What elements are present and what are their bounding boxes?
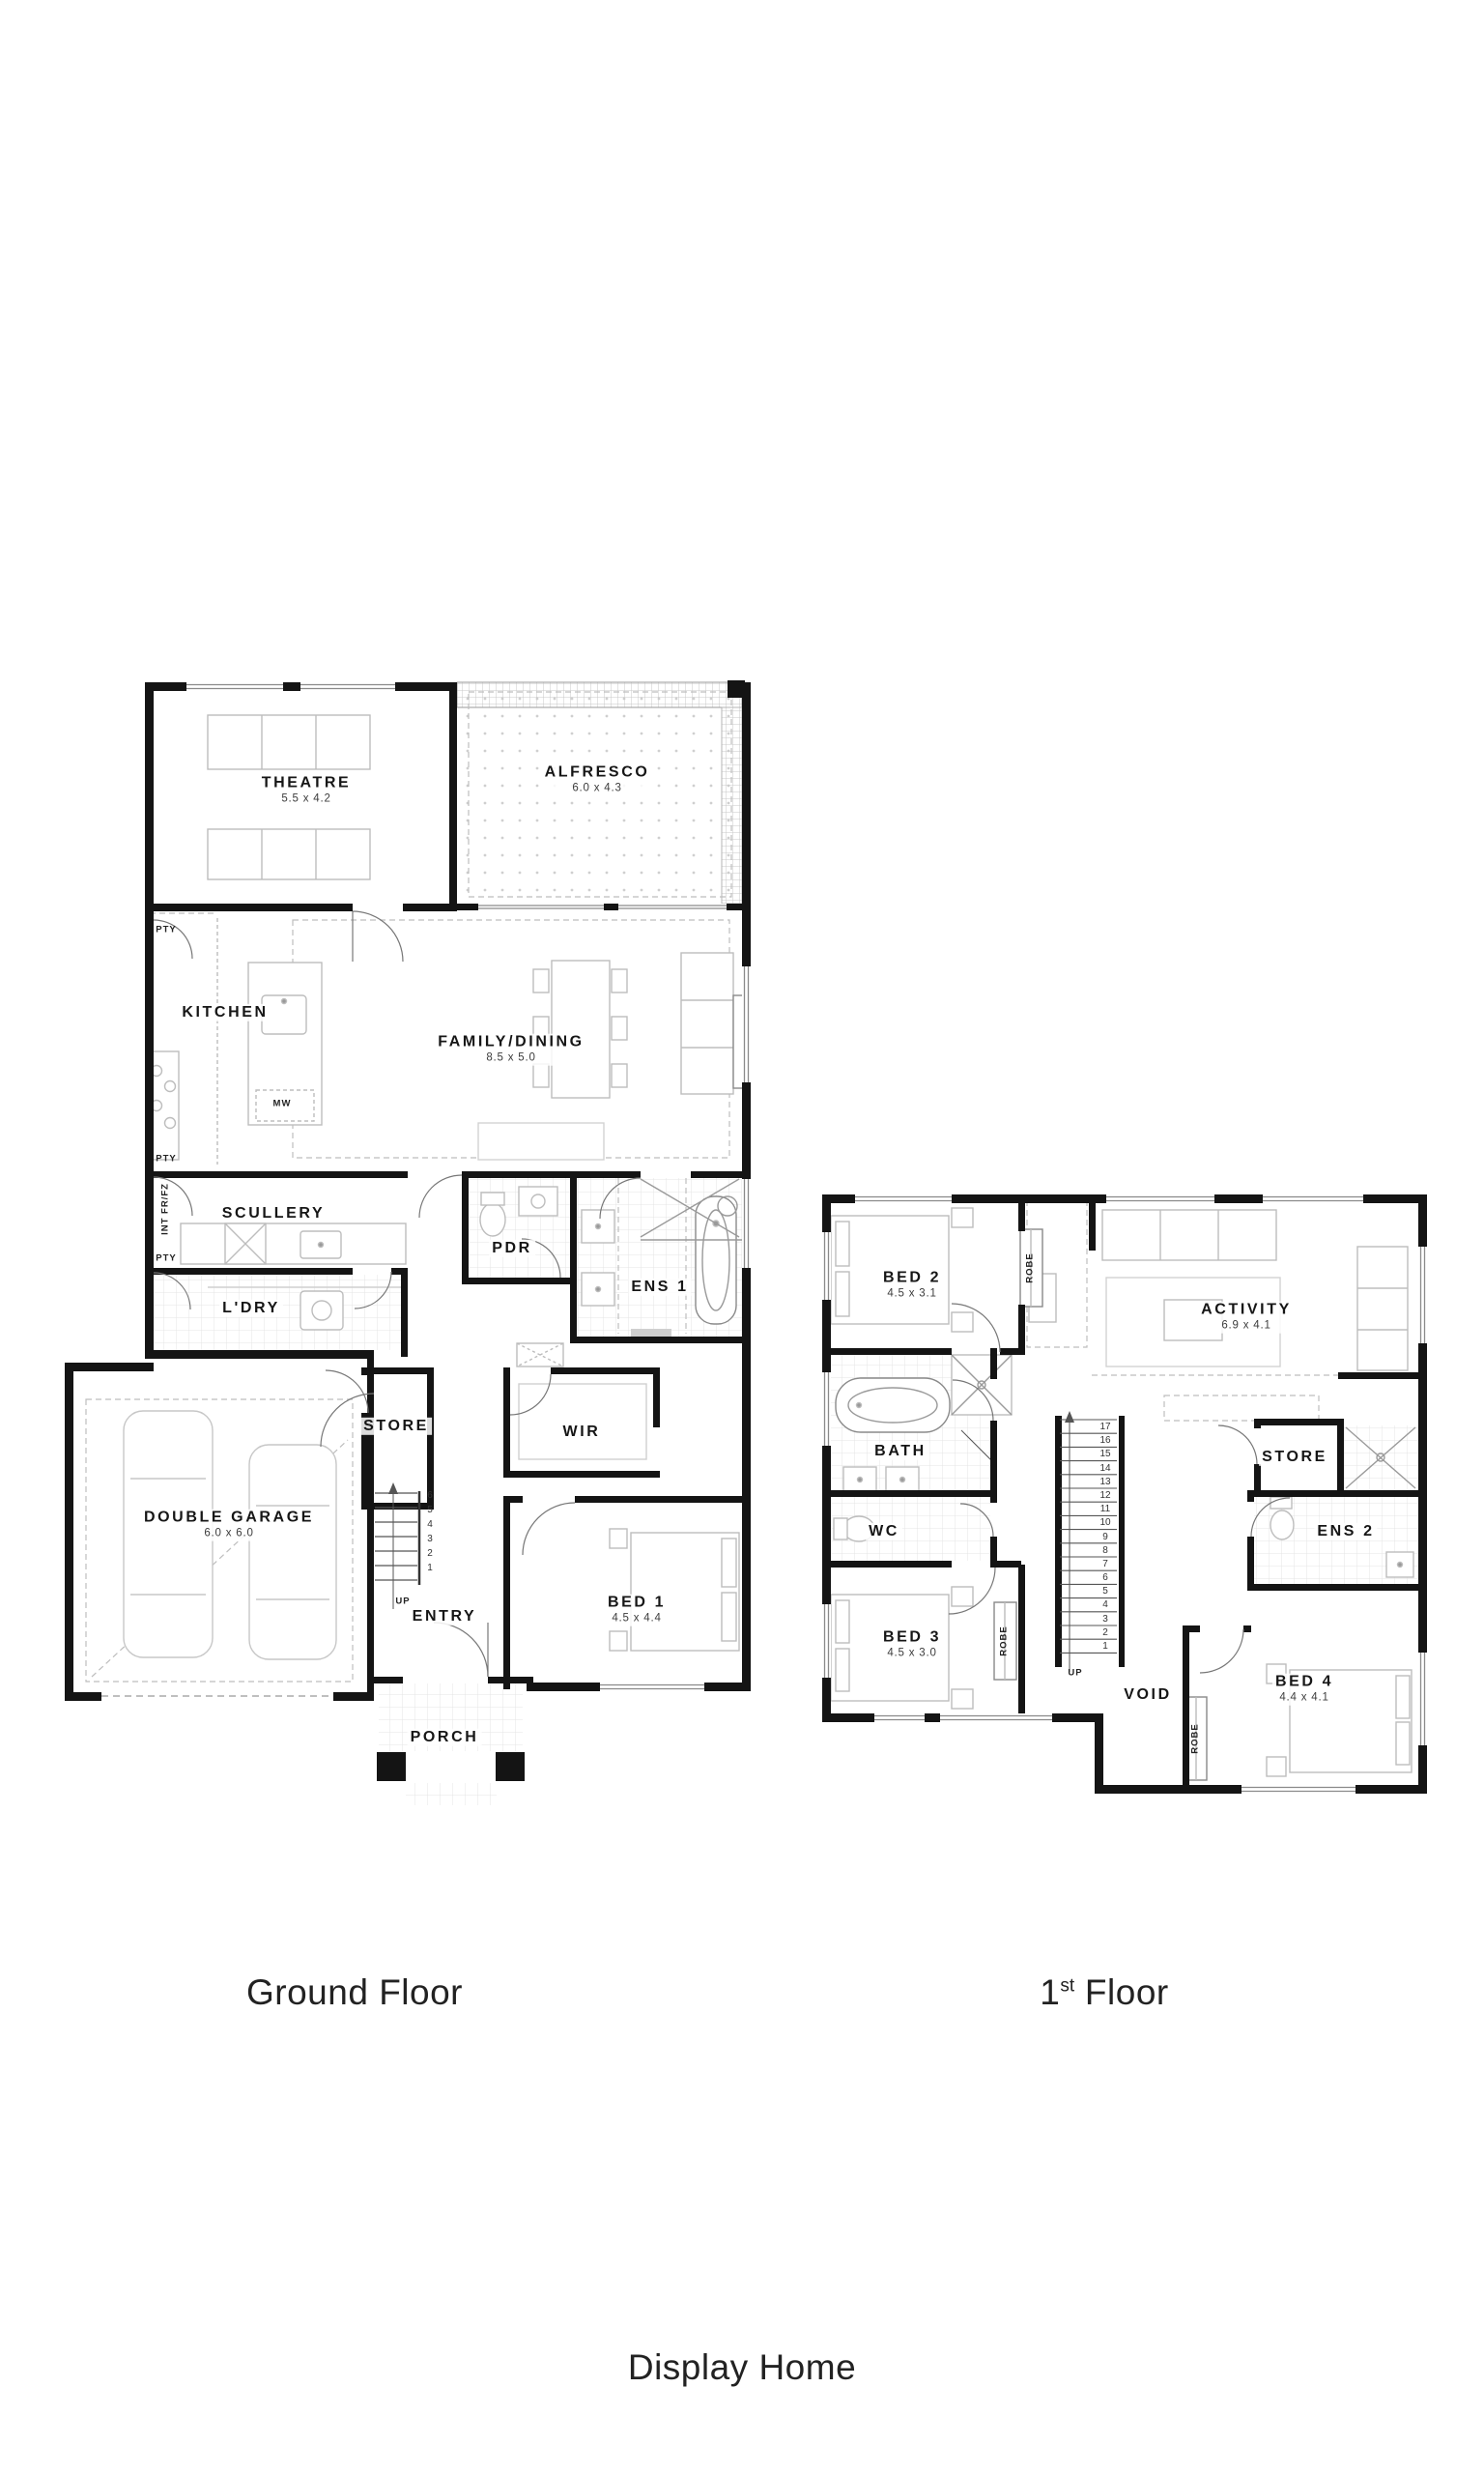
room-label-bed4: BED 4 4.4 x 4.1 xyxy=(1272,1674,1336,1706)
room-label-bath: BATH xyxy=(871,1443,929,1460)
label-up-first: UP xyxy=(1068,1669,1082,1680)
ground-floor-plan: THEATRE 5.5 x 4.2 ALFRESCO 6.0 x 4.3 KIT… xyxy=(63,676,783,1807)
stair-number: 6 xyxy=(421,1488,439,1503)
stair-number: 1 xyxy=(421,1561,439,1575)
first-stair-numbers: 1716151413121110987654321 xyxy=(1097,1421,1114,1654)
stair-number: 13 xyxy=(1097,1476,1114,1489)
label-microwave: MW xyxy=(273,1100,292,1110)
label-pty-3: PTY xyxy=(156,1254,176,1265)
room-label-ldry: L'DRY xyxy=(219,1300,283,1317)
room-dims: 6.0 x 6.0 xyxy=(204,1528,253,1540)
stair-number: 9 xyxy=(1097,1531,1114,1544)
label-robe-bed3: ROBE xyxy=(1000,1625,1011,1655)
room-name: ALFRESCO xyxy=(545,764,650,782)
room-label-ens2: ENS 2 xyxy=(1314,1523,1377,1540)
room-dims: 6.0 x 4.3 xyxy=(572,783,621,795)
room-label-kitchen: KITCHEN xyxy=(179,1004,271,1021)
room-label-family-dining: FAMILY/DINING 8.5 x 5.0 xyxy=(435,1034,586,1066)
room-dims: 5.5 x 4.2 xyxy=(281,793,330,806)
stair-number: 4 xyxy=(421,1517,439,1532)
room-name: DOUBLE GARAGE xyxy=(144,1510,314,1527)
room-label-entry: ENTRY xyxy=(410,1608,480,1625)
stair-number: 11 xyxy=(1097,1503,1114,1516)
label-robe-bed4: ROBE xyxy=(1191,1723,1202,1753)
label-pty-1: PTY xyxy=(156,926,176,936)
room-name: ACTIVITY xyxy=(1201,1302,1292,1319)
stair-number: 14 xyxy=(1097,1462,1114,1476)
room-label-bed3: BED 3 4.5 x 3.0 xyxy=(880,1629,944,1661)
stair-number: 8 xyxy=(1097,1544,1114,1558)
room-label-void: VOID xyxy=(1121,1686,1175,1704)
caption-ordinal: st xyxy=(1060,1976,1074,1997)
ground-stair-numbers: 654321 xyxy=(421,1488,439,1575)
room-label-theatre: THEATRE 5.5 x 4.2 xyxy=(259,775,355,807)
room-dims: 4.5 x 3.0 xyxy=(887,1648,936,1660)
caption-text: Display Home xyxy=(628,2347,856,2387)
room-label-scullery: SCULLERY xyxy=(219,1205,328,1223)
caption-number: 1 xyxy=(1040,1972,1060,2012)
room-label-porch: PORCH xyxy=(408,1729,482,1746)
room-label-bed2: BED 2 4.5 x 3.1 xyxy=(880,1270,944,1302)
caption-ground-floor: Ground Floor xyxy=(246,1972,463,2013)
room-name: VOID xyxy=(1124,1686,1172,1704)
room-name: WC xyxy=(869,1523,899,1540)
stair-number: 17 xyxy=(1097,1421,1114,1434)
stair-number: 4 xyxy=(1097,1598,1114,1612)
room-label-store: STORE xyxy=(360,1418,432,1435)
stair-number: 3 xyxy=(1097,1613,1114,1626)
room-dims: 4.4 x 4.1 xyxy=(1279,1692,1328,1705)
room-name: STORE xyxy=(363,1418,429,1435)
room-dims: 6.9 x 4.1 xyxy=(1221,1320,1270,1333)
room-label-pdr: PDR xyxy=(489,1240,535,1257)
room-name: KITCHEN xyxy=(182,1004,268,1021)
room-label-ens1: ENS 1 xyxy=(628,1279,691,1296)
caption-text: Floor xyxy=(1074,1972,1169,2012)
stair-number: 5 xyxy=(1097,1585,1114,1598)
room-label-alfresco: ALFRESCO 6.0 x 4.3 xyxy=(542,764,653,796)
room-dims: 4.5 x 4.4 xyxy=(612,1613,661,1625)
stair-number: 6 xyxy=(1097,1571,1114,1585)
room-name: ENTRY xyxy=(413,1608,477,1625)
label-int-fridge-freezer: INT FR/FZ xyxy=(161,1183,172,1235)
label-up-ground: UP xyxy=(395,1597,410,1608)
room-label-wc: WC xyxy=(866,1523,902,1540)
stair-number: 15 xyxy=(1097,1448,1114,1461)
room-label-wir: WIR xyxy=(560,1424,604,1441)
room-label-bed1: BED 1 4.5 x 4.4 xyxy=(605,1595,669,1626)
stair-number: 5 xyxy=(421,1503,439,1517)
label-pty-2: PTY xyxy=(156,1155,176,1165)
room-name: PORCH xyxy=(411,1729,479,1746)
room-label-double-garage: DOUBLE GARAGE 6.0 x 6.0 xyxy=(141,1510,317,1541)
room-dims: 8.5 x 5.0 xyxy=(486,1052,535,1065)
stair-number: 7 xyxy=(1097,1558,1114,1571)
room-name: ENS 2 xyxy=(1317,1523,1374,1540)
room-name: BED 1 xyxy=(608,1595,666,1612)
room-name: PDR xyxy=(492,1240,532,1257)
room-name: BED 2 xyxy=(883,1270,941,1287)
stair-number: 16 xyxy=(1097,1434,1114,1448)
room-name: STORE xyxy=(1262,1449,1327,1466)
room-name: SCULLERY xyxy=(222,1205,325,1223)
stair-number: 1 xyxy=(1097,1640,1114,1654)
room-name: BED 4 xyxy=(1275,1674,1333,1691)
stair-number: 12 xyxy=(1097,1489,1114,1503)
stair-number: 2 xyxy=(1097,1626,1114,1640)
room-name: BED 3 xyxy=(883,1629,941,1647)
stair-number: 2 xyxy=(421,1546,439,1561)
stair-number: 3 xyxy=(421,1532,439,1546)
caption-display-home: Display Home xyxy=(628,2347,856,2388)
caption-text: Ground Floor xyxy=(246,1972,463,2012)
ground-floor-linework xyxy=(63,676,783,1807)
room-name: FAMILY/DINING xyxy=(438,1034,584,1051)
room-name: BATH xyxy=(874,1443,927,1460)
room-name: L'DRY xyxy=(222,1300,280,1317)
room-dims: 4.5 x 3.1 xyxy=(887,1288,936,1301)
floorplan-sheet: THEATRE 5.5 x 4.2 ALFRESCO 6.0 x 4.3 KIT… xyxy=(0,0,1484,2474)
room-name: WIR xyxy=(563,1424,601,1441)
ground-stairs xyxy=(375,1482,419,1609)
room-name: THEATRE xyxy=(262,775,352,792)
label-robe-bed2: ROBE xyxy=(1026,1252,1037,1282)
room-label-activity: ACTIVITY 6.9 x 4.1 xyxy=(1198,1302,1295,1334)
first-floor-plan: BED 2 4.5 x 3.1 ACTIVITY 6.9 x 4.1 BATH … xyxy=(816,1189,1435,1807)
caption-first-floor: 1st Floor xyxy=(1040,1972,1168,2013)
stair-number: 10 xyxy=(1097,1516,1114,1530)
room-label-store-first: STORE xyxy=(1259,1449,1330,1466)
room-name: ENS 1 xyxy=(631,1279,688,1296)
